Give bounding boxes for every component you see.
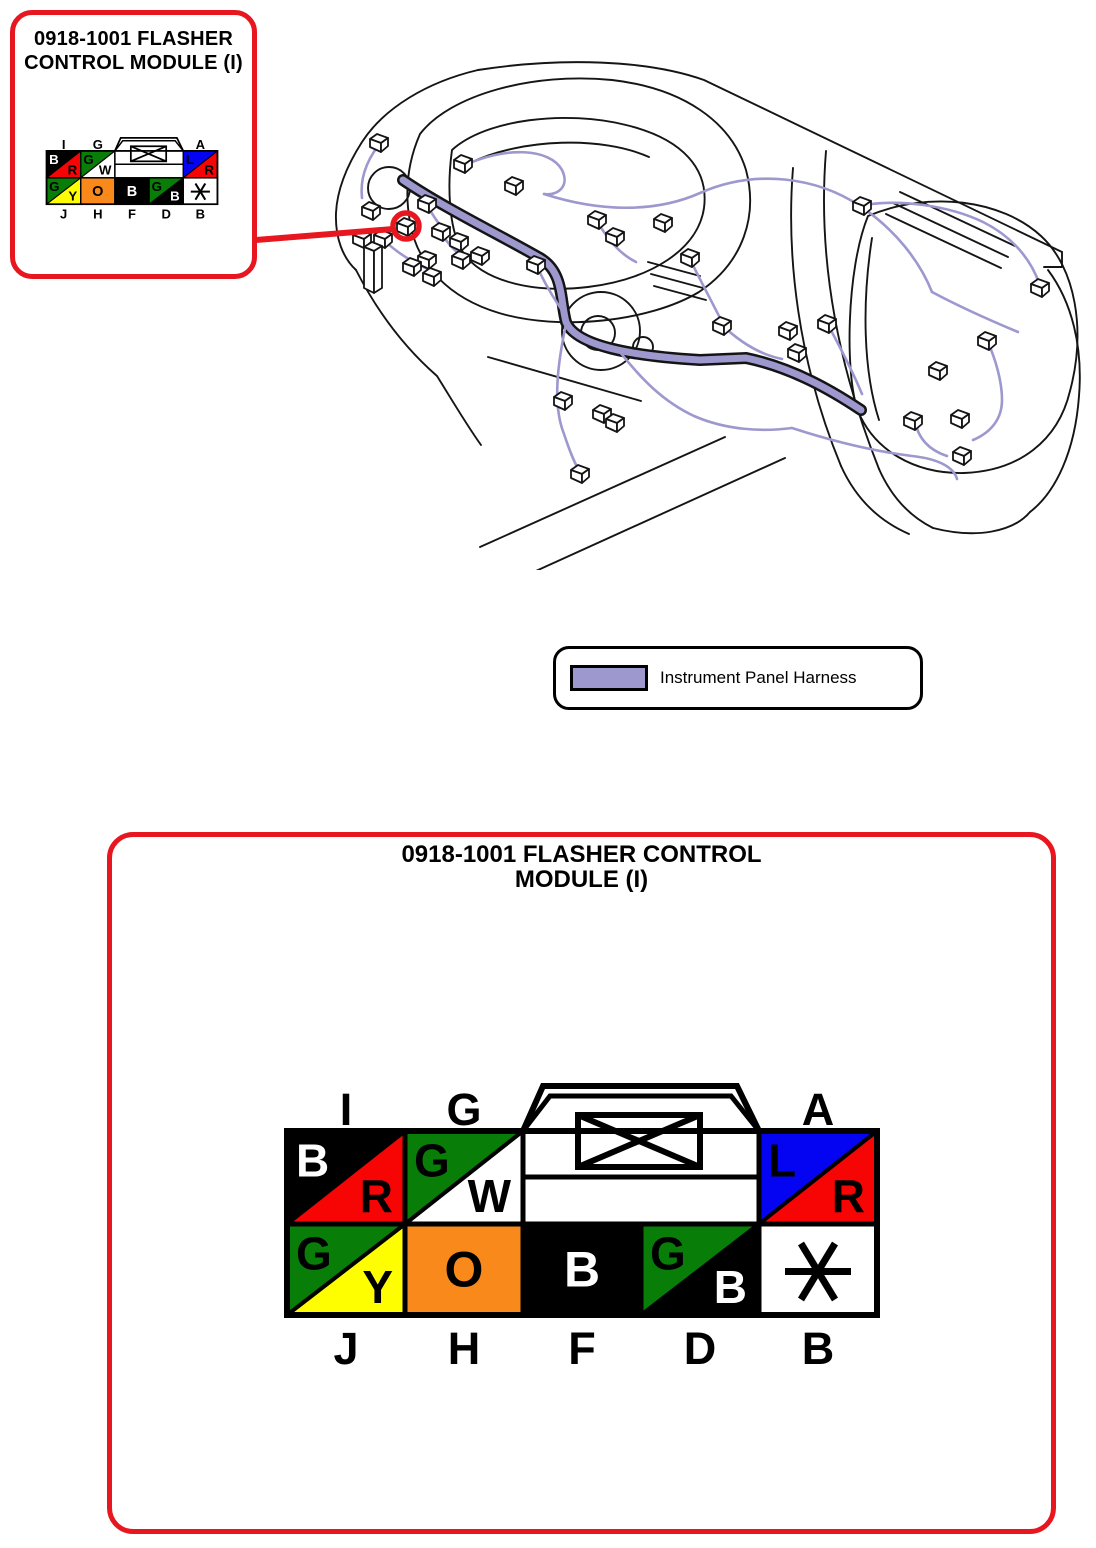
pin-cell-A: LR bbox=[759, 1131, 877, 1224]
dashboard-illustration bbox=[330, 50, 1096, 570]
connector-cube bbox=[779, 322, 797, 340]
connector-cube bbox=[929, 362, 947, 380]
pin-position-label-F: F bbox=[568, 1323, 596, 1373]
connector-latch bbox=[115, 138, 183, 178]
pin-letter: B bbox=[296, 1135, 329, 1187]
connector-cube bbox=[527, 256, 545, 274]
pin-letter: R bbox=[204, 162, 214, 177]
detail-title-line1: 0918-1001 FLASHER CONTROL bbox=[112, 842, 1051, 867]
pin-letter: B bbox=[127, 184, 137, 200]
flasher-module-pinout-large: BRGWLRGYOBGBIGAJHFDB bbox=[282, 1083, 882, 1373]
pin-letter: G bbox=[152, 179, 162, 194]
harness-color-swatch bbox=[570, 665, 648, 691]
connector-cube bbox=[362, 202, 380, 220]
pin-position-label-F: F bbox=[128, 206, 136, 221]
pin-position-label-I: I bbox=[62, 137, 66, 152]
callout-title-line2: CONTROL MODULE (I) bbox=[15, 51, 252, 75]
pin-cell-G: GW bbox=[405, 1131, 523, 1224]
connector-cube bbox=[1031, 279, 1049, 297]
pin-letter: G bbox=[414, 1135, 450, 1187]
pin-letter: B bbox=[564, 1242, 600, 1298]
pin-letter: L bbox=[768, 1135, 796, 1187]
pin-letter: L bbox=[186, 152, 194, 167]
pin-cell-D: GB bbox=[149, 178, 183, 204]
pin-position-label-G: G bbox=[446, 1084, 481, 1135]
detail-title: 0918-1001 FLASHER CONTROL MODULE (I) bbox=[112, 837, 1051, 892]
pin-position-label-J: J bbox=[333, 1323, 358, 1373]
pin-position-label-H: H bbox=[93, 206, 102, 221]
pin-cell-J: GY bbox=[287, 1224, 405, 1315]
flasher-module-pinout-small: BRGWLRGYOBGBIGAJHFDB bbox=[45, 137, 219, 221]
page: 0918-1001 FLASHER CONTROL MODULE (I) BRG… bbox=[0, 0, 1096, 1548]
pin-letter: W bbox=[99, 162, 112, 177]
connector-cube bbox=[588, 211, 606, 229]
connector-latch bbox=[523, 1086, 759, 1224]
pin-cell-G: GW bbox=[81, 151, 115, 178]
connector-cube bbox=[471, 247, 489, 265]
pin-letter: W bbox=[468, 1170, 512, 1222]
pin-letter: Y bbox=[68, 189, 77, 204]
harness-wires bbox=[362, 146, 1039, 479]
connector-cube bbox=[418, 195, 436, 213]
pin-letter: R bbox=[68, 162, 78, 177]
pin-position-label-I: I bbox=[340, 1084, 353, 1135]
pin-letter: B bbox=[714, 1261, 747, 1313]
pin-letter: B bbox=[49, 152, 59, 167]
pin-position-label-G: G bbox=[93, 137, 103, 152]
connector-cube bbox=[397, 218, 415, 236]
pin-position-label-H: H bbox=[448, 1323, 481, 1373]
pin-cell-B bbox=[759, 1224, 877, 1315]
connector-cube bbox=[788, 344, 806, 362]
pin-letter: G bbox=[296, 1228, 332, 1280]
pin-cell-F: B bbox=[115, 178, 149, 204]
dash-outline bbox=[336, 62, 1080, 570]
connector-cube bbox=[505, 177, 523, 195]
connector-cubes bbox=[353, 134, 1049, 483]
connector-cube bbox=[853, 197, 871, 215]
pin-letter: G bbox=[650, 1228, 686, 1280]
pin-position-label-D: D bbox=[161, 206, 170, 221]
pin-position-label-A: A bbox=[802, 1084, 835, 1135]
pin-position-label-J: J bbox=[60, 206, 67, 221]
harness-legend: Instrument Panel Harness bbox=[553, 646, 923, 710]
connector-cube bbox=[681, 249, 699, 267]
pin-cell-H: O bbox=[405, 1224, 523, 1315]
pin-cell-A: LR bbox=[183, 151, 217, 178]
pin-letter: O bbox=[92, 184, 103, 200]
pin-cell-H: O bbox=[81, 178, 115, 204]
pin-cell-I: BR bbox=[287, 1131, 405, 1224]
connector-cube bbox=[953, 447, 971, 465]
connector-pinout: BRGWLRGYOBGBIGAJHFDB bbox=[45, 137, 219, 221]
callout-title-line1: 0918-1001 FLASHER bbox=[15, 27, 252, 51]
connector-cube bbox=[713, 317, 731, 335]
connector-cube bbox=[606, 414, 624, 432]
pin-position-label-B: B bbox=[196, 206, 205, 221]
pin-cell-F: B bbox=[523, 1224, 641, 1315]
connector-cube bbox=[818, 315, 836, 333]
pin-position-label-A: A bbox=[196, 137, 206, 152]
connector-cube bbox=[370, 134, 388, 152]
connector-cube bbox=[452, 251, 470, 269]
connector-cube bbox=[454, 155, 472, 173]
pin-position-label-D: D bbox=[684, 1323, 717, 1373]
pin-letter: R bbox=[360, 1170, 393, 1222]
pin-letter: B bbox=[170, 189, 180, 204]
pin-cell-J: GY bbox=[47, 178, 81, 204]
relay-box bbox=[364, 242, 382, 293]
pin-cell-B bbox=[183, 178, 217, 204]
connector-cube bbox=[978, 332, 996, 350]
pin-position-label-B: B bbox=[802, 1323, 835, 1373]
connector-cube bbox=[904, 412, 922, 430]
pin-letter: R bbox=[832, 1170, 865, 1222]
detail-title-line2: MODULE (I) bbox=[112, 867, 1051, 892]
pin-cell-D: GB bbox=[641, 1224, 759, 1315]
connector-cube bbox=[951, 410, 969, 428]
connector-cube bbox=[432, 223, 450, 241]
pin-cell-I: BR bbox=[47, 151, 81, 178]
pin-letter: Y bbox=[362, 1261, 393, 1313]
connector-cube bbox=[606, 228, 624, 246]
connector-cube bbox=[571, 465, 589, 483]
pin-letter: G bbox=[83, 152, 93, 167]
connector-cube bbox=[423, 268, 441, 286]
connector-pinout: BRGWLRGYOBGBIGAJHFDB bbox=[282, 1083, 882, 1373]
harness-legend-label: Instrument Panel Harness bbox=[660, 668, 857, 688]
pin-letter: G bbox=[49, 179, 59, 194]
connector-cube bbox=[403, 258, 421, 276]
pin-letter: O bbox=[445, 1242, 484, 1298]
callout-title: 0918-1001 FLASHER CONTROL MODULE (I) bbox=[15, 15, 252, 75]
connector-cube bbox=[654, 214, 672, 232]
